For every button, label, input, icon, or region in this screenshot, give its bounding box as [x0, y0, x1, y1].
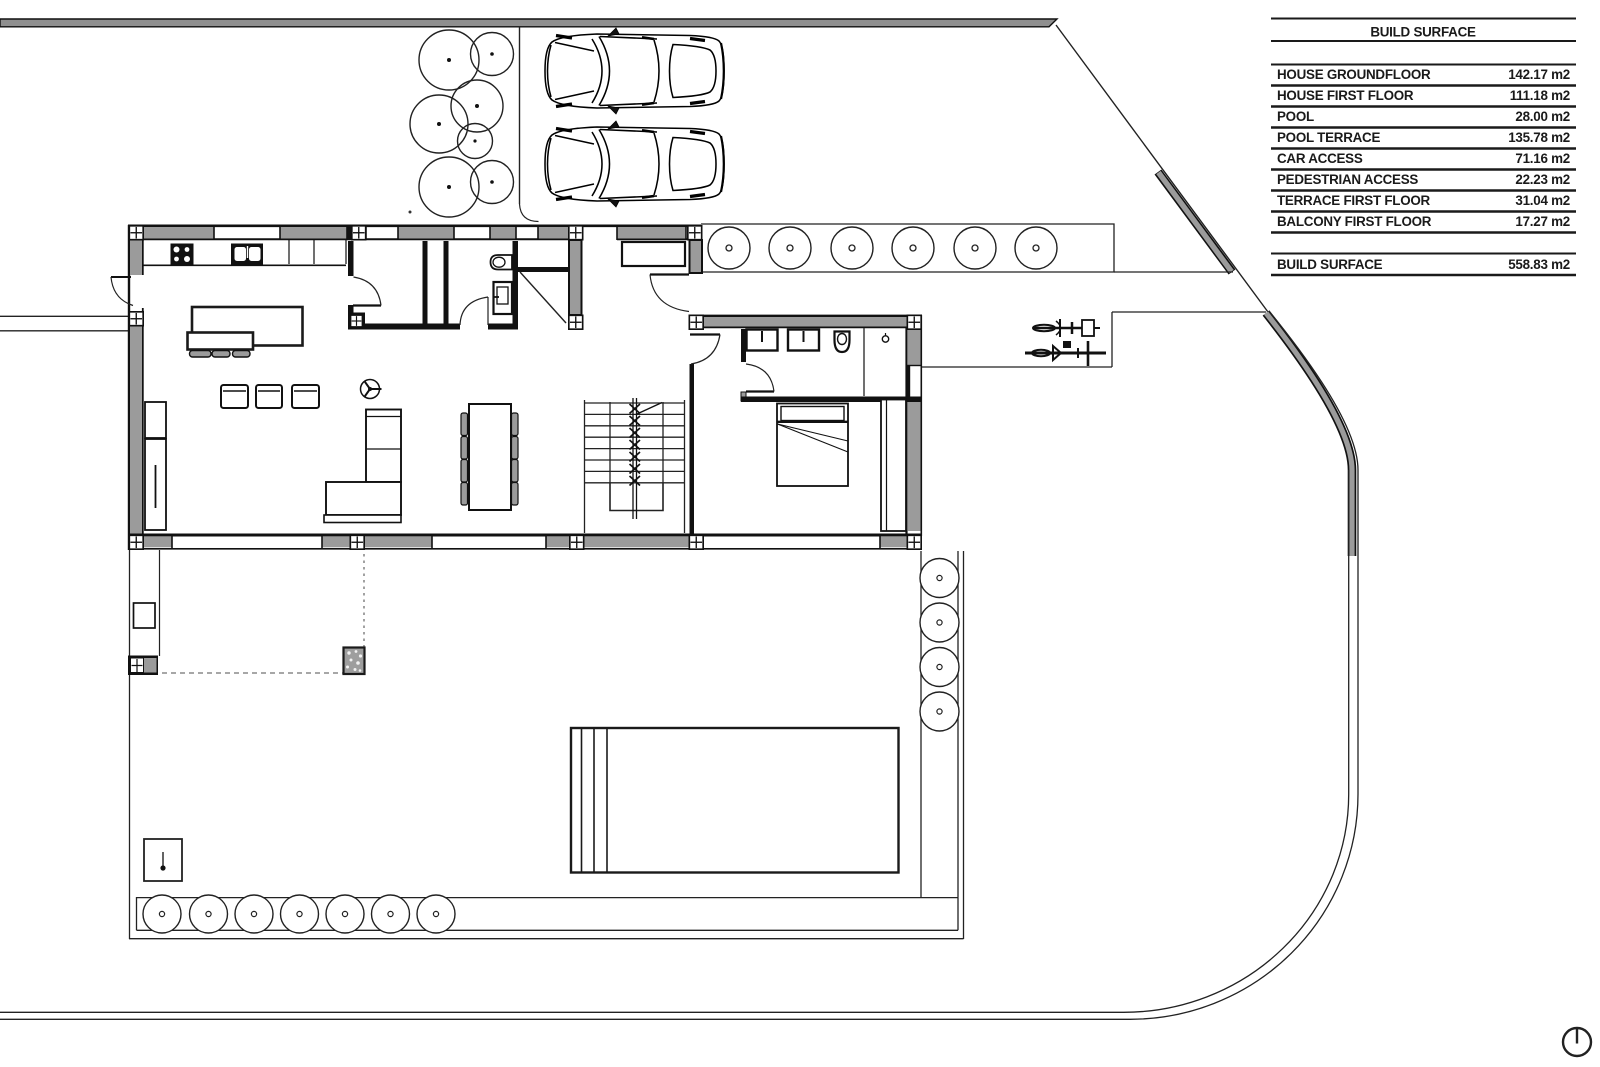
- svg-text:BUILD SURFACE: BUILD SURFACE: [1277, 257, 1383, 272]
- svg-text:PEDESTRIAN ACCESS: PEDESTRIAN ACCESS: [1277, 172, 1418, 187]
- svg-text:HOUSE GROUNDFLOOR: HOUSE GROUNDFLOOR: [1277, 67, 1431, 82]
- svg-text:111.18 m2: 111.18 m2: [1510, 88, 1570, 103]
- svg-text:BUILD SURFACE: BUILD SURFACE: [1370, 25, 1476, 40]
- svg-text:22.23 m2: 22.23 m2: [1515, 172, 1570, 187]
- svg-text:BALCONY FIRST FLOOR: BALCONY FIRST FLOOR: [1277, 214, 1432, 229]
- svg-text:POOL TERRACE: POOL TERRACE: [1277, 130, 1380, 145]
- svg-text:POOL: POOL: [1277, 109, 1314, 124]
- svg-text:558.83 m2: 558.83 m2: [1508, 257, 1570, 272]
- svg-text:71.16 m2: 71.16 m2: [1515, 151, 1570, 166]
- svg-text:CAR ACCESS: CAR ACCESS: [1277, 151, 1363, 166]
- svg-text:31.04 m2: 31.04 m2: [1515, 193, 1570, 208]
- svg-text:TERRACE FIRST FLOOR: TERRACE FIRST FLOOR: [1277, 193, 1431, 208]
- svg-text:142.17 m2: 142.17 m2: [1508, 67, 1570, 82]
- svg-text:17.27 m2: 17.27 m2: [1515, 214, 1570, 229]
- svg-text:28.00 m2: 28.00 m2: [1515, 109, 1570, 124]
- svg-text:HOUSE FIRST FLOOR: HOUSE FIRST FLOOR: [1277, 88, 1414, 103]
- svg-text:135.78 m2: 135.78 m2: [1508, 130, 1570, 145]
